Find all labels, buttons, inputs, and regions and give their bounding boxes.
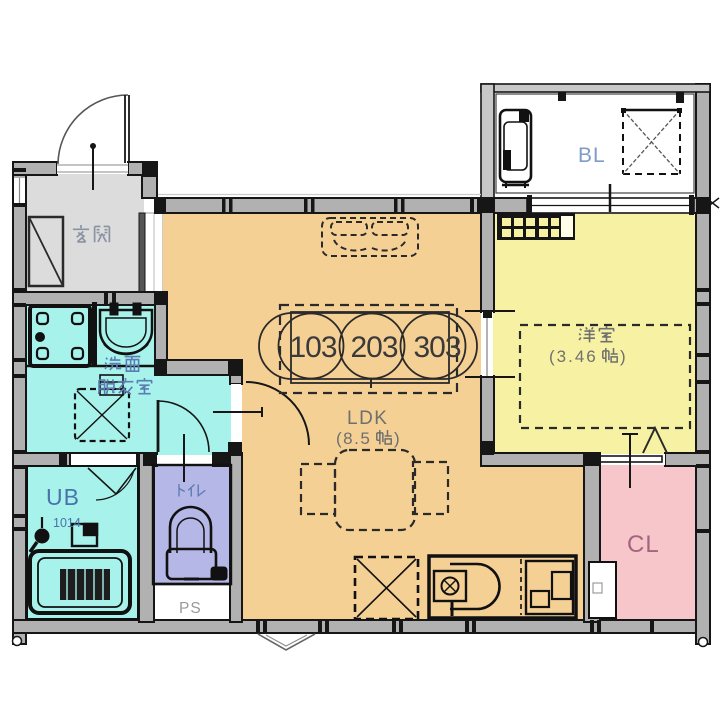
svg-text:PS: PS	[179, 600, 202, 617]
svg-text:(8.5: (8.5	[336, 429, 371, 448]
svg-text:303: 303	[413, 331, 460, 364]
svg-text:CL: CL	[627, 531, 660, 558]
svg-text:(3.46: (3.46	[549, 347, 598, 366]
svg-text:UB: UB	[46, 484, 80, 510]
svg-text:): )	[394, 429, 400, 448]
svg-text:LDK: LDK	[347, 408, 388, 429]
svg-text:103: 103	[289, 331, 336, 364]
svg-text:): )	[620, 347, 626, 366]
svg-text:1014: 1014	[53, 516, 81, 530]
svg-text:BL: BL	[578, 144, 606, 167]
svg-text:203: 203	[350, 331, 397, 364]
